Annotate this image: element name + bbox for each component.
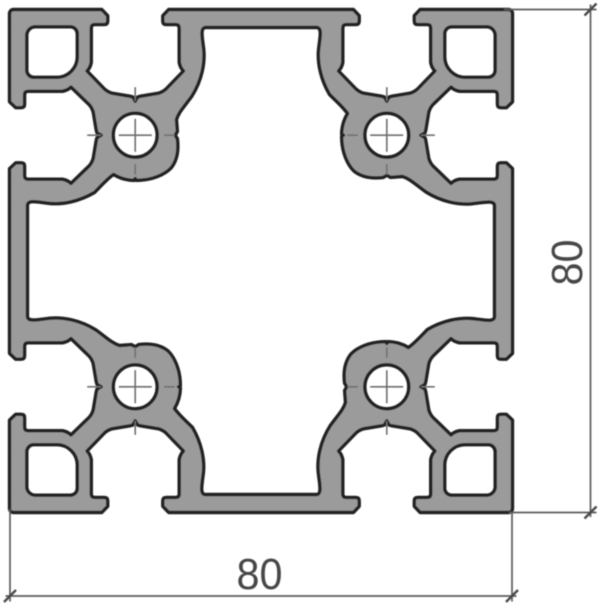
svg-text:80: 80 <box>237 550 283 599</box>
svg-text:80: 80 <box>543 240 592 286</box>
